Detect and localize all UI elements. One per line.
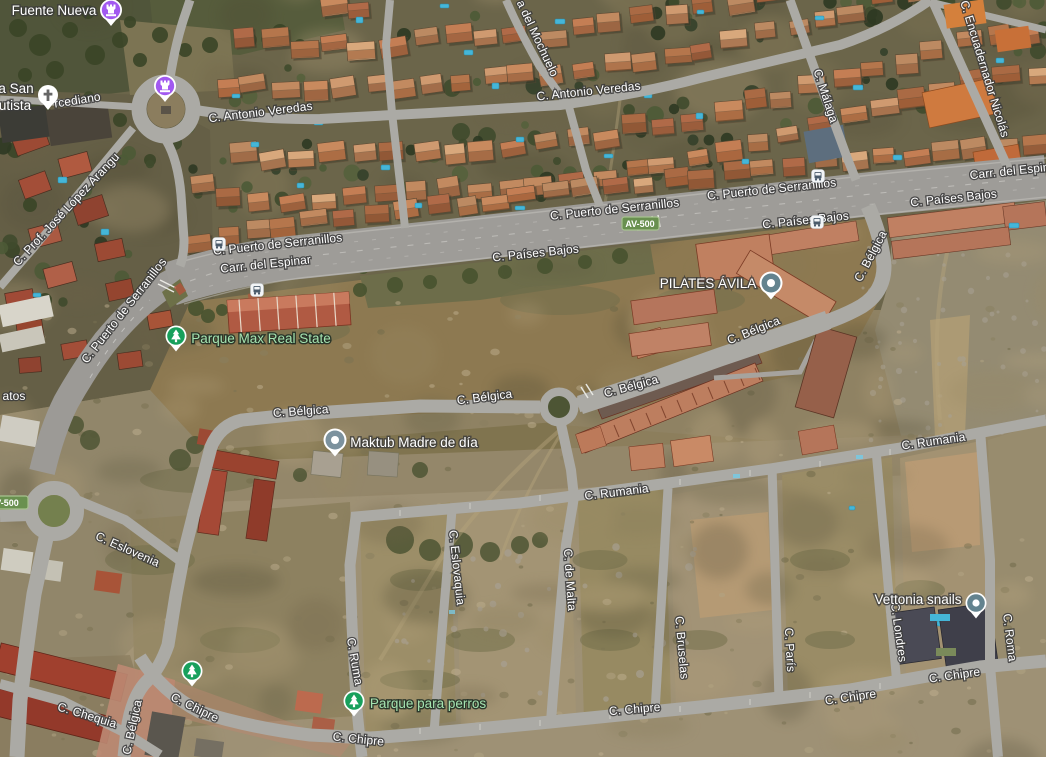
svg-text:Parque para perros: Parque para perros [370,696,487,711]
svg-text:atos: atos [2,389,25,403]
svg-text:C. París: C. París [782,627,798,672]
svg-text:Fuente Nueva: Fuente Nueva [12,3,97,18]
svg-text:utista: utista [0,98,32,113]
svg-text:PILATES ÁVILA: PILATES ÁVILA [660,276,757,291]
svg-text:Parque Max Real State: Parque Max Real State [191,331,331,346]
svg-text:V-500: V-500 [0,498,19,508]
svg-text:Vettonia snails: Vettonia snails [874,592,961,607]
svg-text:Maktub Madre de día: Maktub Madre de día [350,435,478,450]
svg-text:a San: a San [0,81,34,96]
svg-text:AV-500: AV-500 [625,219,654,229]
